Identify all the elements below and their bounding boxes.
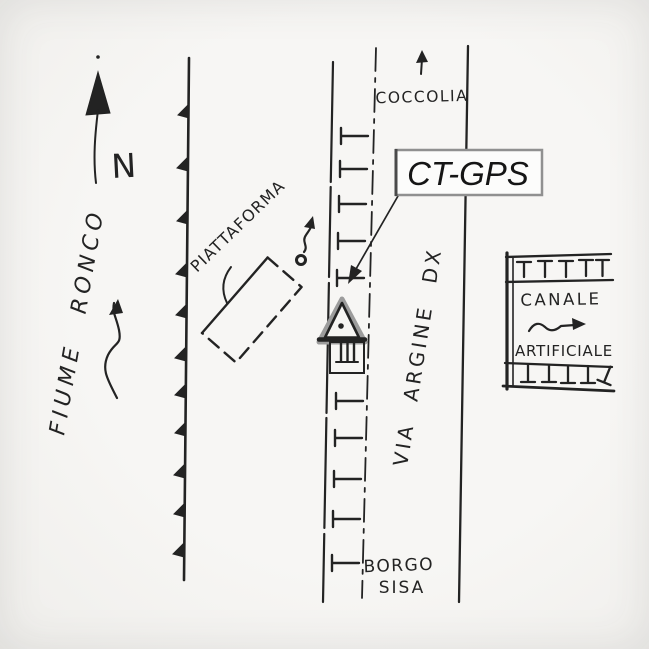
river-flow-arrow-icon [105,299,123,398]
ctgps-leader-arrowhead-icon [348,265,362,284]
platform-marker-icon [297,216,316,265]
canal-name-label-2: ARTIFICIALE [515,342,613,360]
road-right-edge-line [459,46,468,602]
platform-dashed-outline [202,258,302,363]
ctgps-label-box: CT-GPS [396,149,542,196]
platform-label: PIATTAFORMA [187,176,289,276]
sketch-map-canvas: N FIUME RONCO PIATTAFORMA [0,0,649,649]
sisa-label: SISA [379,578,426,598]
coccolia-direction-arrow-icon [416,50,428,74]
canal-name-label: CANALE [520,289,601,309]
north-arrow-icon [86,55,110,183]
borgo-label: BORGO [363,555,434,577]
canal-flow-arrow-icon [529,318,586,331]
north-label: N [110,146,137,186]
station-building-symbol [330,342,364,373]
canal-top-bank-hachures [517,260,609,277]
embankment-hachure-line [173,58,189,580]
river-name-label: FIUME RONCO [45,206,110,437]
station-marker-dot [338,323,344,329]
road-centerline-dashdot [362,48,376,598]
road-name-label: VIA ARGINE DX [388,246,446,468]
canal-structure [503,253,614,391]
road-tick-marks [332,128,368,571]
station-marker-triangle [319,299,365,342]
coccolia-label: COCCOLIA [375,87,468,107]
ctgps-label: CT-GPS [407,155,529,192]
platform-tick-arc [223,267,231,303]
sketch-map-page: N FIUME RONCO PIATTAFORMA [0,0,649,649]
